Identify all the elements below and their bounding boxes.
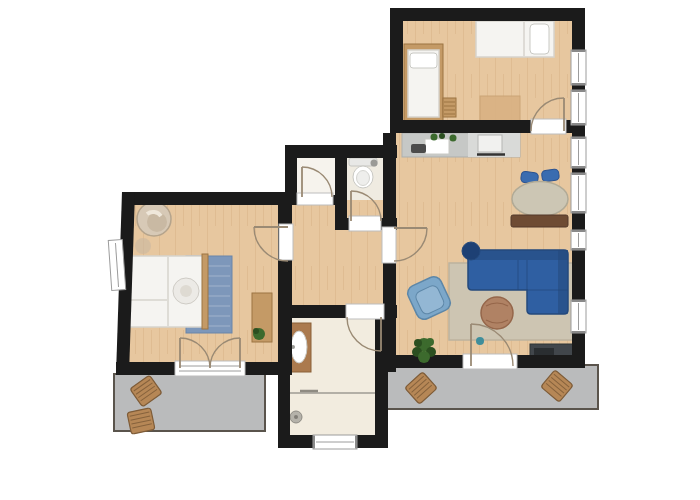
flush-button	[371, 160, 378, 167]
vase	[476, 337, 484, 345]
floor-plan-image	[0, 0, 700, 500]
round-pillow-center	[180, 285, 192, 297]
dining-chair	[541, 169, 559, 182]
sideboard	[511, 215, 568, 227]
double-bed	[476, 21, 554, 57]
round-cushion	[462, 242, 480, 260]
single-bed	[404, 44, 443, 122]
stove	[478, 135, 502, 152]
cutting-board	[425, 139, 449, 154]
floor-plan-page	[0, 0, 700, 500]
window	[571, 137, 586, 168]
window	[571, 90, 586, 125]
pouf	[481, 297, 513, 329]
dining-table	[512, 182, 568, 217]
headboard	[202, 254, 208, 329]
bedside-ladder	[443, 98, 456, 117]
window	[571, 50, 586, 85]
window	[571, 230, 586, 250]
window	[571, 173, 586, 213]
small-plant	[253, 328, 265, 340]
kitchen	[402, 133, 520, 157]
pillow	[530, 24, 549, 54]
window	[108, 240, 125, 291]
window	[313, 435, 357, 449]
faucet	[411, 144, 426, 153]
shower-head	[290, 411, 302, 423]
pillow	[410, 53, 437, 68]
deck-chair	[127, 408, 155, 435]
stool	[135, 238, 151, 254]
papasan-chair	[137, 202, 171, 236]
window	[571, 300, 586, 333]
double-bed	[127, 254, 208, 329]
tv-device	[534, 348, 554, 355]
